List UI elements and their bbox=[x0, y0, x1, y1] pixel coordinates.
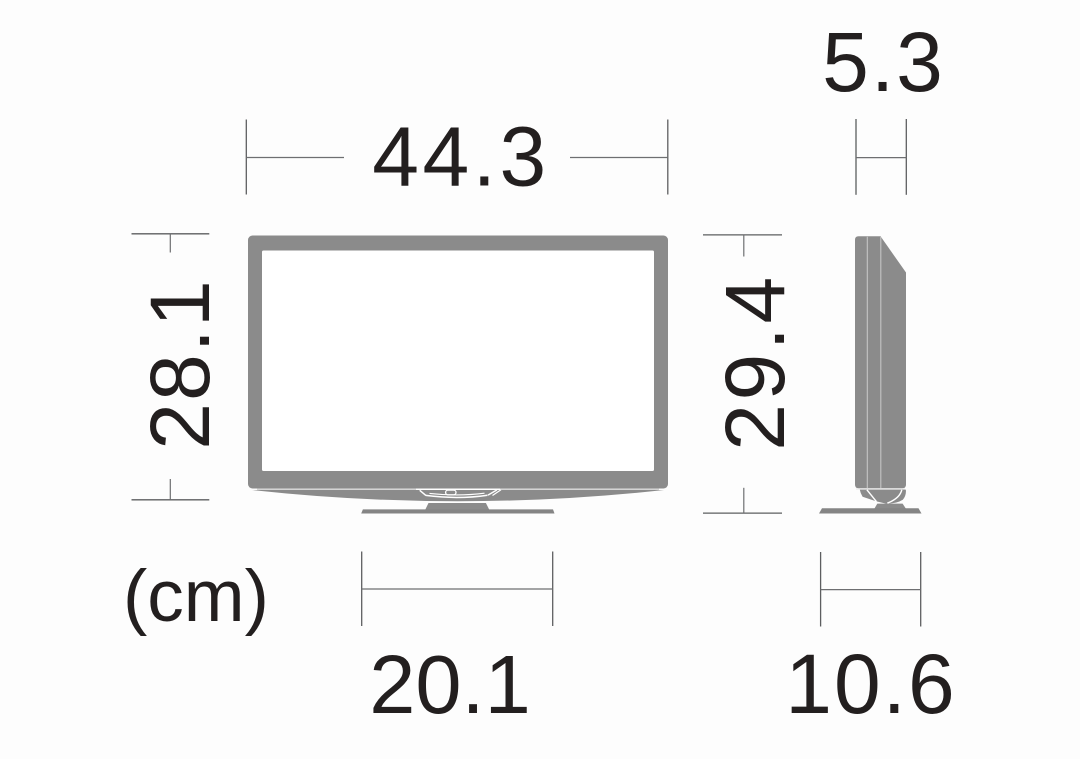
svg-text:5.3: 5.3 bbox=[822, 15, 945, 109]
svg-text:10.6: 10.6 bbox=[785, 637, 957, 731]
svg-text:44.3: 44.3 bbox=[372, 110, 550, 204]
svg-text:20.1: 20.1 bbox=[369, 638, 531, 731]
svg-text:29.4: 29.4 bbox=[708, 273, 802, 451]
svg-text:(cm): (cm) bbox=[123, 556, 269, 637]
svg-text:28.1: 28.1 bbox=[133, 278, 227, 450]
